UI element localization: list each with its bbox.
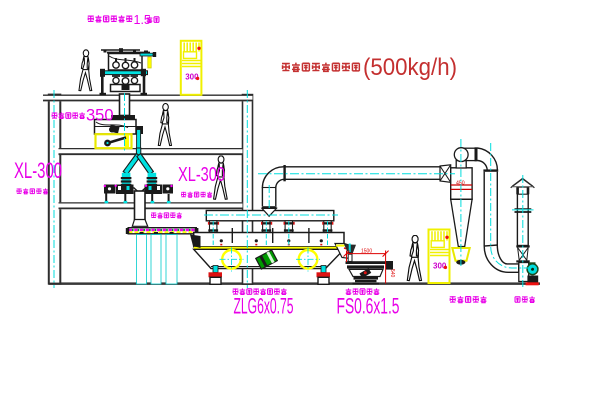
svg-text:350: 350: [86, 107, 114, 125]
svg-text:ZLG6x0.75: ZLG6x0.75: [234, 294, 294, 319]
svg-text:(500kg/h): (500kg/h): [363, 54, 457, 81]
svg-text:XL-300: XL-300: [14, 158, 62, 183]
svg-text:FS0.6x1.5: FS0.6x1.5: [337, 294, 400, 319]
svg-text:XL-300: XL-300: [178, 164, 225, 186]
svg-text:540: 540: [389, 269, 395, 278]
svg-text:1500: 1500: [361, 249, 372, 255]
svg-text:450: 450: [456, 180, 465, 186]
